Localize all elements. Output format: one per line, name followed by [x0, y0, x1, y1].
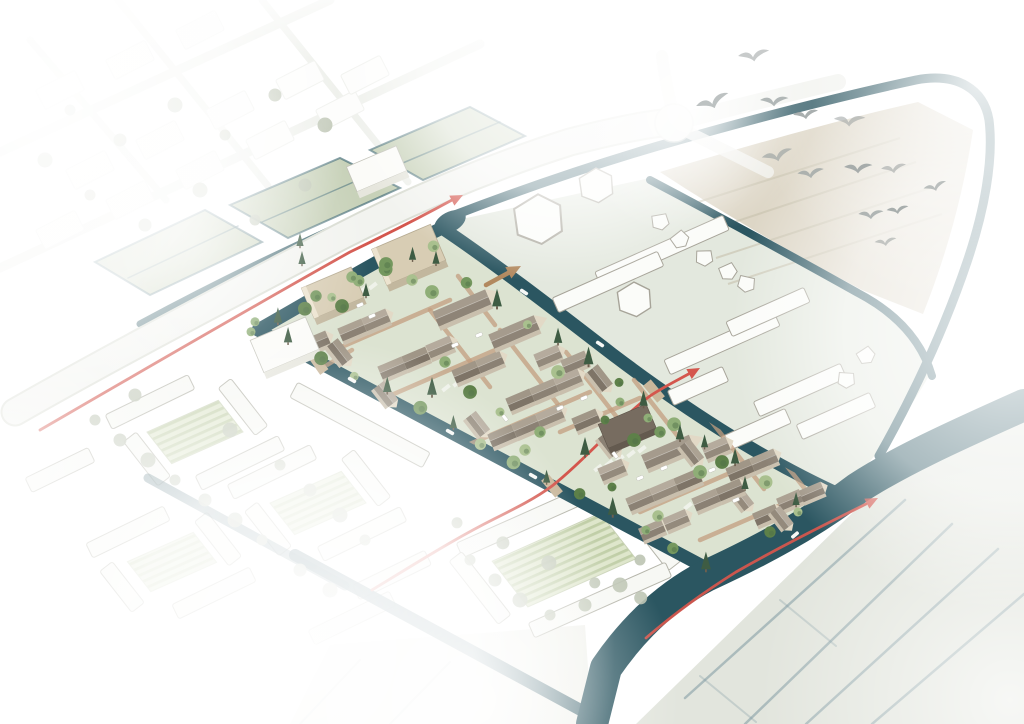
fog [0, 0, 1024, 60]
fog [0, 0, 1024, 724]
masterplan-illustration [0, 0, 1024, 724]
fog-overlay [0, 0, 1024, 724]
masterplan-canvas [0, 0, 1024, 724]
